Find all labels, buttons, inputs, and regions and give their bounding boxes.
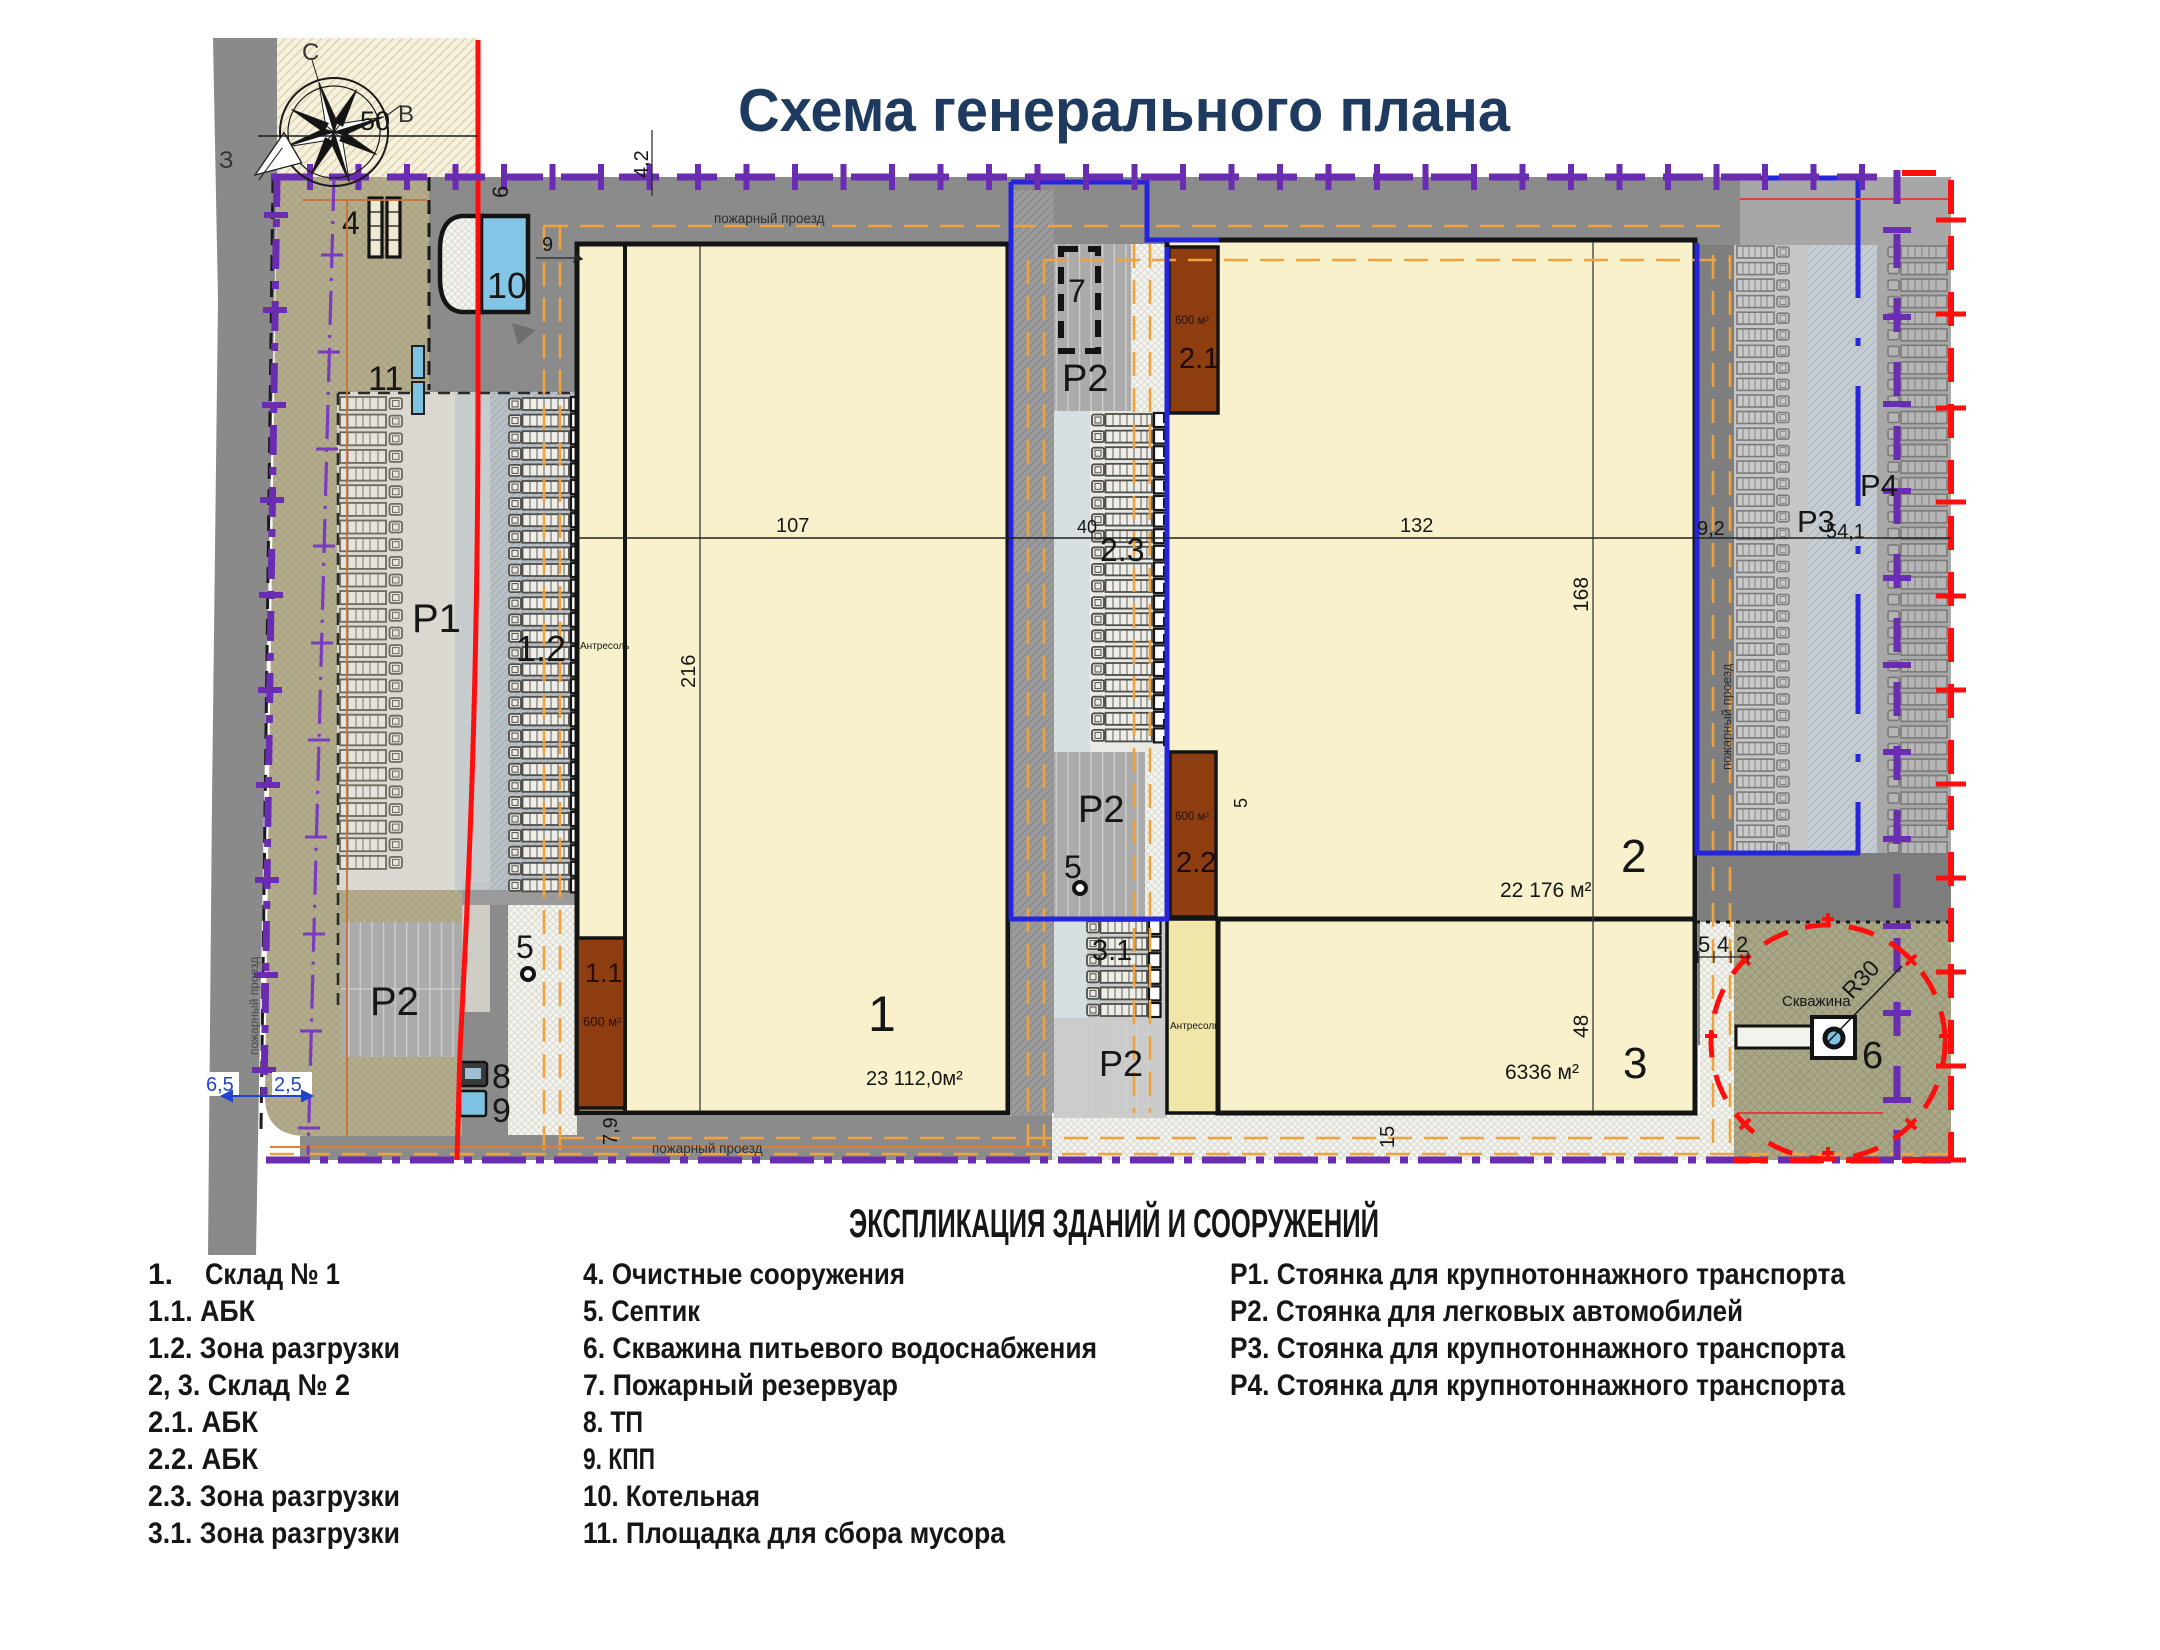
svg-text:8: 8: [492, 1058, 511, 1096]
svg-text:40: 40: [1077, 517, 1097, 537]
svg-text:11: 11: [368, 360, 403, 398]
svg-text:48: 48: [1570, 1015, 1593, 1038]
svg-text:5: 5: [1231, 798, 1251, 808]
svg-text:Скважина: Скважина: [1782, 993, 1851, 1010]
svg-text:107: 107: [776, 515, 809, 537]
svg-text:Р1. Стоянка для крупнотоннажно: Р1. Стоянка для крупнотоннажного транспо…: [1230, 1258, 1845, 1291]
svg-text:С: С: [302, 39, 319, 66]
svg-text:2.2. АБК: 2.2. АБК: [148, 1443, 259, 1476]
svg-text:5: 5: [516, 929, 534, 965]
svg-text:9: 9: [492, 1092, 511, 1130]
svg-text:Антресоль: Антресоль: [1170, 1021, 1219, 1032]
svg-text:P4: P4: [1860, 468, 1898, 503]
svg-text:3.1: 3.1: [1092, 935, 1132, 967]
svg-text:9,2: 9,2: [1697, 518, 1725, 540]
svg-text:3: 3: [1623, 1039, 1647, 1088]
svg-text:600 м²: 600 м²: [583, 1014, 622, 1029]
svg-text:7. Пожарный резервуар: 7. Пожарный резервуар: [583, 1369, 898, 1402]
svg-text:2, 3. Склад № 2: 2, 3. Склад № 2: [148, 1369, 350, 1402]
svg-text:P3: P3: [1797, 504, 1835, 539]
svg-text:6: 6: [488, 186, 513, 198]
svg-text:P2: P2: [1099, 1043, 1143, 1084]
svg-text:Склад № 1: Склад № 1: [205, 1258, 340, 1291]
svg-text:2.1: 2.1: [1179, 343, 1219, 375]
svg-text:5. Септик: 5. Септик: [583, 1295, 701, 1328]
svg-text:1.2: 1.2: [516, 628, 566, 669]
svg-text:4: 4: [342, 205, 360, 241]
svg-text:пожарный проезд: пожарный проезд: [1719, 663, 1734, 770]
svg-text:23 112,0м²: 23 112,0м²: [866, 1068, 963, 1090]
svg-text:ЭКСПЛИКАЦИЯ ЗДАНИЙ И СООРУЖЕНИ: ЭКСПЛИКАЦИЯ ЗДАНИЙ И СООРУЖЕНИЙ: [849, 1200, 1379, 1246]
svg-text:9: 9: [542, 234, 553, 256]
svg-text:P1: P1: [412, 597, 461, 641]
svg-text:7,9: 7,9: [600, 1117, 622, 1145]
svg-text:пожарный проезд: пожарный проезд: [247, 957, 261, 1055]
svg-text:4. Очистные сооружения: 4. Очистные сооружения: [583, 1258, 905, 1291]
svg-text:2,5: 2,5: [274, 1074, 302, 1096]
svg-text:22 176 м²: 22 176 м²: [1500, 879, 1592, 902]
svg-text:7: 7: [1068, 273, 1086, 309]
svg-text:пожарный проезд: пожарный проезд: [652, 1141, 763, 1156]
svg-text:6: 6: [1862, 1035, 1883, 1077]
svg-text:З: З: [219, 147, 234, 174]
svg-text:Р3. Стоянка для крупнотоннажно: Р3. Стоянка для крупнотоннажного транспо…: [1230, 1332, 1845, 1365]
svg-text:9. КПП: 9. КПП: [583, 1443, 655, 1476]
svg-text:В: В: [398, 101, 414, 128]
svg-text:1.2. Зона разгрузки: 1.2. Зона разгрузки: [148, 1332, 400, 1365]
svg-text:2: 2: [1621, 830, 1647, 882]
svg-text:1.1: 1.1: [585, 958, 623, 988]
svg-text:пожарный проезд: пожарный проезд: [714, 211, 825, 226]
svg-text:Антресоль: Антресоль: [580, 641, 629, 652]
svg-text:4,2: 4,2: [631, 150, 653, 178]
svg-text:6336 м²: 6336 м²: [1505, 1061, 1579, 1084]
svg-text:1.1. АБК: 1.1. АБК: [148, 1295, 256, 1328]
svg-text:600 м²: 600 м²: [1175, 811, 1209, 823]
svg-text:Схема генерального плана: Схема генерального плана: [738, 77, 1511, 144]
svg-text:10. Котельная: 10. Котельная: [583, 1480, 760, 1513]
svg-text:3.1. Зона разгрузки: 3.1. Зона разгрузки: [148, 1517, 400, 1550]
svg-text:8. ТП: 8. ТП: [583, 1406, 643, 1439]
svg-text:216: 216: [678, 655, 700, 688]
svg-text:2.3: 2.3: [1100, 532, 1144, 568]
svg-text:15: 15: [1377, 1126, 1399, 1148]
svg-text:P2: P2: [370, 980, 419, 1024]
svg-text:132: 132: [1400, 515, 1433, 537]
svg-text:50: 50: [360, 106, 390, 136]
svg-text:2: 2: [1736, 932, 1748, 957]
svg-text:2.1. АБК: 2.1. АБК: [148, 1406, 259, 1439]
svg-text:1: 1: [868, 986, 896, 1042]
svg-text:10: 10: [487, 265, 527, 306]
svg-text:Р2. Стоянка для легковых автом: Р2. Стоянка для легковых автомобилей: [1230, 1295, 1743, 1328]
svg-text:2.2: 2.2: [1176, 847, 1216, 879]
svg-text:P2: P2: [1078, 789, 1124, 831]
svg-text:5: 5: [1698, 932, 1710, 957]
svg-text:4: 4: [1717, 932, 1729, 957]
svg-text:600 м²: 600 м²: [1175, 315, 1209, 327]
svg-text:6. Скважина питьевого водоснаб: 6. Скважина питьевого водоснабжения: [583, 1332, 1097, 1365]
svg-text:11. Площадка для сбора мусора: 11. Площадка для сбора мусора: [583, 1517, 1005, 1550]
svg-text:5: 5: [1064, 849, 1082, 885]
svg-text:2.3. Зона разгрузки: 2.3. Зона разгрузки: [148, 1480, 400, 1513]
svg-text:P2: P2: [1062, 358, 1108, 400]
svg-text:Р4. Стоянка для крупнотоннажно: Р4. Стоянка для крупнотоннажного транспо…: [1230, 1369, 1845, 1402]
svg-text:168: 168: [1570, 577, 1593, 612]
svg-text:1.: 1.: [148, 1258, 173, 1291]
